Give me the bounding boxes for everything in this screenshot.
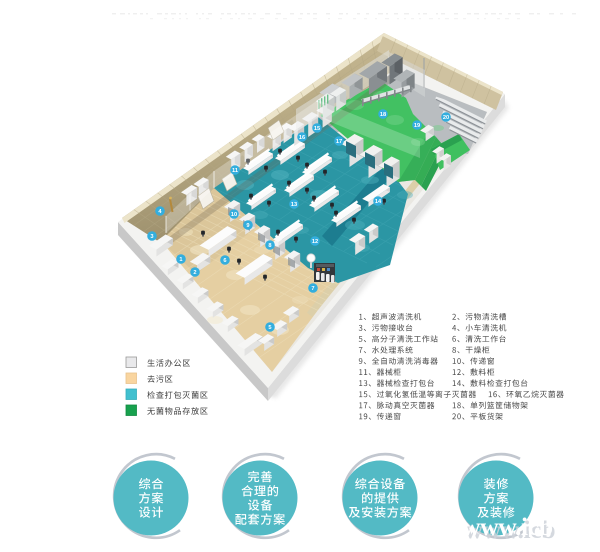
svg-text:6: 6: [223, 258, 226, 264]
svg-text:18: 18: [380, 112, 386, 118]
svg-text:12: 12: [312, 239, 318, 245]
svg-text:7: 7: [311, 286, 314, 292]
svg-text:20: 20: [443, 115, 449, 121]
svg-text:8: 8: [268, 243, 271, 249]
svg-text:5: 5: [268, 325, 271, 331]
svg-text:16: 16: [299, 135, 305, 141]
svg-text:3: 3: [150, 234, 153, 240]
svg-text:10: 10: [231, 212, 237, 218]
svg-text:1: 1: [179, 257, 182, 263]
svg-text:17: 17: [336, 139, 342, 145]
svg-text:2: 2: [193, 270, 196, 276]
svg-text:14: 14: [375, 199, 382, 205]
svg-text:11: 11: [232, 168, 238, 174]
svg-text:13: 13: [291, 202, 297, 208]
svg-text:15: 15: [314, 126, 320, 132]
svg-text:www.icb: www.icb: [462, 512, 553, 541]
svg-text:19: 19: [414, 123, 420, 129]
svg-text:9: 9: [246, 223, 249, 229]
